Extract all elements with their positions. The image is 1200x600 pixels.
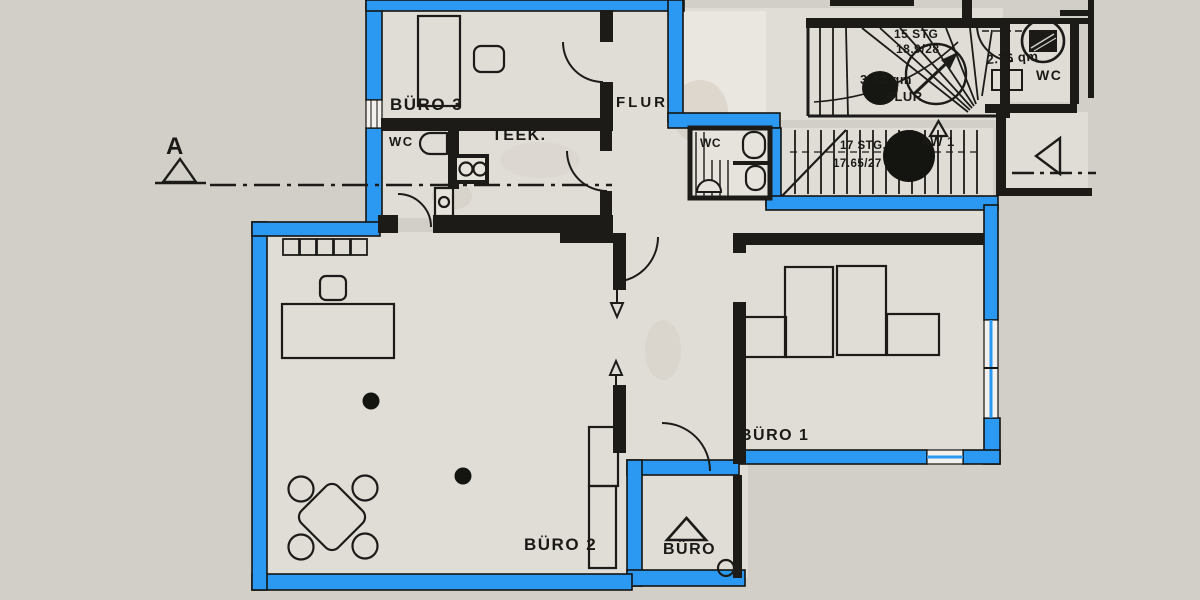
- section-triangle-icon: [163, 159, 196, 182]
- window-buero1-east: [984, 320, 998, 418]
- wall-blue: [766, 196, 998, 210]
- wall-blue: [963, 450, 1000, 464]
- wall-blue: [737, 450, 927, 464]
- wall-black: [962, 0, 972, 18]
- floor-plan-drawing: [0, 0, 1200, 600]
- landing-name-label: FLUR: [886, 89, 923, 104]
- paper-smudge: [645, 320, 681, 380]
- room-label-wc-left: WC: [389, 134, 414, 149]
- room-label-buero2: BÜRO 2: [524, 535, 597, 555]
- wall-blue: [668, 0, 683, 122]
- kitchen-sink-unit: [453, 154, 489, 184]
- wall-black: [1000, 18, 1010, 118]
- room-label-wc-right: WC: [1036, 67, 1062, 83]
- wall-black: [746, 233, 984, 245]
- stairs-lower-steps-label: 17 STG.: [840, 140, 886, 152]
- room-label-wc-mid: WC: [700, 136, 721, 150]
- column-dot: [455, 468, 472, 485]
- room-label-buero-entry: BÜRO: [663, 541, 716, 559]
- wall-black: [433, 215, 613, 233]
- boiler-fixture: [435, 188, 453, 216]
- wall-blue: [627, 570, 745, 586]
- toilet-fixture: [746, 166, 765, 190]
- stairs-lower-rise-label: 17.65/27: [833, 158, 882, 170]
- wall-blue: [627, 460, 642, 586]
- wall-blue: [627, 460, 739, 475]
- wall-black: [378, 215, 398, 233]
- wall-black: [985, 104, 1077, 113]
- landing-area-label: 3.42 qm: [860, 72, 912, 87]
- wall-black: [1070, 18, 1079, 104]
- wall-black: [600, 10, 613, 42]
- wall-black: [560, 233, 613, 243]
- section-marker-letter: A: [166, 133, 185, 161]
- wall-blue: [984, 205, 998, 320]
- room-label-flur: FLUR: [616, 94, 668, 111]
- aw1-label: AW 1: [921, 134, 955, 149]
- wall-blue: [252, 222, 267, 590]
- window-buero3-west: [366, 100, 382, 128]
- wall-blue: [252, 222, 380, 236]
- stairs-upper-steps-label: 15 STG: [894, 27, 938, 41]
- wall-black: [1000, 188, 1092, 196]
- wall-blue: [366, 128, 382, 228]
- window-buero1-south: [927, 450, 963, 464]
- wall-blue: [366, 0, 684, 11]
- wall-black: [1060, 10, 1092, 16]
- wall-black: [733, 475, 742, 578]
- toilet-fixture: [743, 132, 765, 158]
- room-fill-right-corridor: [996, 112, 1088, 194]
- wall-black: [600, 82, 613, 118]
- wall-blue: [252, 574, 632, 590]
- wall-black: [600, 131, 612, 151]
- room-fill-buero1: [745, 208, 990, 456]
- wall-black: [613, 385, 626, 453]
- wall-blue: [366, 0, 382, 100]
- room-label-buero1: BÜRO 1: [740, 427, 809, 445]
- wall-black: [733, 233, 746, 253]
- room-label-teekueche: TEEK.: [492, 127, 547, 145]
- column-dot: [363, 393, 380, 410]
- room-label-buero3: BÜRO 3: [390, 95, 463, 115]
- wall-black: [830, 0, 914, 6]
- stairs-upper-rise-label: 18.9/28: [896, 42, 940, 56]
- floor-plan-scan: { "title": "Grundriss Büroetage (scanned…: [0, 0, 1200, 600]
- wall-black: [996, 113, 1006, 196]
